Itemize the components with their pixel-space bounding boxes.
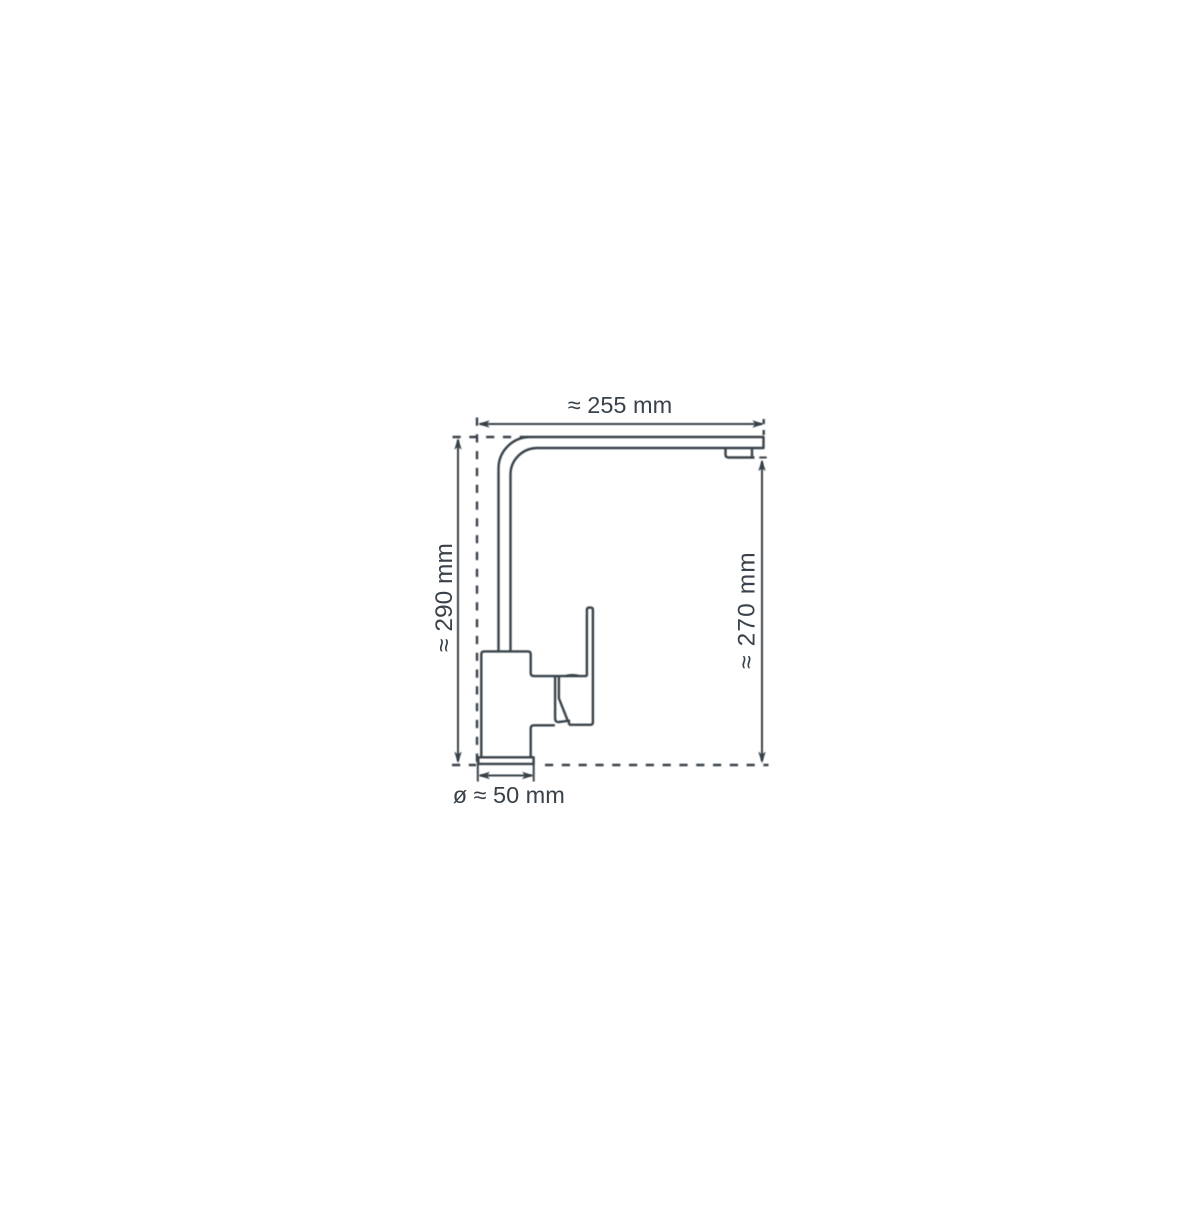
svg-text:≈ 290 mm: ≈ 290 mm: [431, 543, 458, 652]
svg-text:ø ≈ 50 mm: ø ≈ 50 mm: [453, 782, 565, 808]
svg-text:≈ 255 mm: ≈ 255 mm: [568, 392, 672, 418]
svg-text:≈ 270 mm: ≈ 270 mm: [734, 551, 761, 669]
